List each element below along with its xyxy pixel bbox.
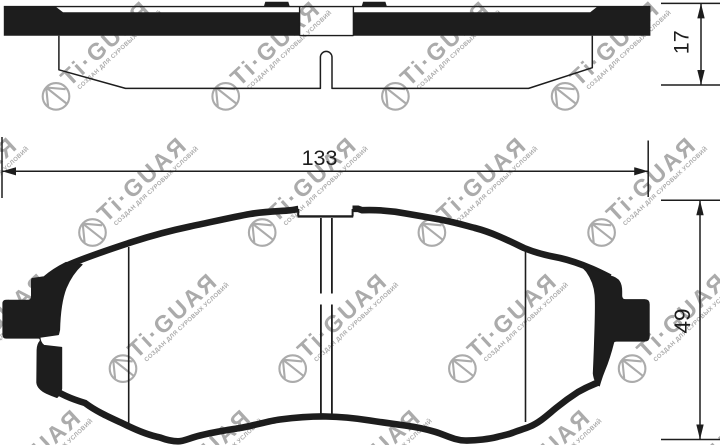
svg-text:17: 17 <box>670 30 694 54</box>
svg-text:49: 49 <box>670 308 695 333</box>
svg-text:133: 133 <box>302 146 338 170</box>
